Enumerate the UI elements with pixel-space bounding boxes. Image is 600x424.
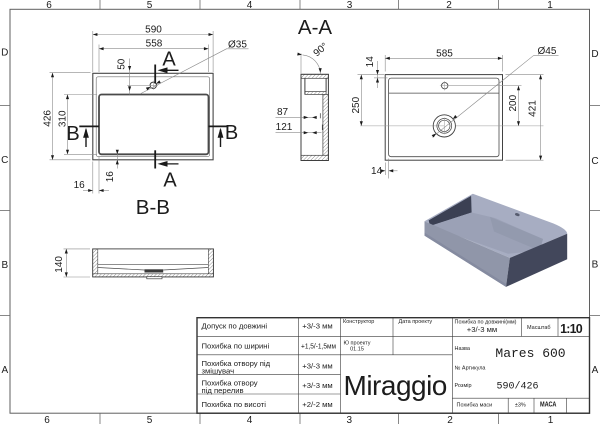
- svg-text:Дата проекту: Дата проекту: [399, 319, 433, 325]
- svg-text:№ Артикула: № Артикула: [455, 366, 487, 372]
- svg-text:5: 5: [147, 0, 153, 11]
- svg-text:16: 16: [105, 171, 116, 183]
- svg-text:3: 3: [347, 415, 353, 424]
- svg-text:+2/-2 мм: +2/-2 мм: [302, 400, 332, 409]
- svg-text:16: 16: [74, 180, 86, 191]
- svg-text:558: 558: [146, 39, 163, 50]
- svg-text:200: 200: [508, 94, 519, 111]
- svg-text:B-B: B-B: [136, 196, 170, 219]
- svg-text:Miraggio: Miraggio: [344, 370, 447, 401]
- svg-text:+3/-3 мм: +3/-3 мм: [302, 362, 332, 371]
- svg-text:A: A: [1, 365, 8, 376]
- svg-text:змішувач: змішувач: [202, 367, 235, 376]
- svg-text:під перелив: під перелив: [202, 386, 244, 395]
- svg-text:Похибка маси: Похибка маси: [457, 402, 493, 408]
- svg-text:590: 590: [145, 25, 162, 36]
- svg-text:Похибка по ширині: Похибка по ширині: [202, 342, 270, 351]
- svg-text:4: 4: [247, 0, 253, 11]
- svg-text:1:10: 1:10: [560, 322, 583, 336]
- svg-text:590/426: 590/426: [496, 380, 538, 392]
- svg-text:A: A: [592, 365, 599, 376]
- svg-text:A: A: [163, 169, 177, 191]
- svg-text:B: B: [1, 260, 8, 271]
- svg-text:D: D: [1, 48, 8, 59]
- svg-text:121: 121: [276, 122, 293, 133]
- svg-text:310: 310: [58, 110, 69, 127]
- svg-text:+1,5/-1,5мм: +1,5/-1,5мм: [301, 342, 336, 351]
- svg-text:МАСА: МАСА: [540, 399, 557, 408]
- svg-text:Допуск по довжині: Допуск по довжині: [202, 322, 268, 331]
- svg-text:2: 2: [447, 415, 453, 424]
- svg-text:±3%: ±3%: [515, 402, 526, 408]
- svg-text:6: 6: [44, 415, 50, 424]
- svg-text:01.15: 01.15: [350, 347, 364, 353]
- svg-text:14: 14: [371, 166, 383, 177]
- svg-text:4: 4: [247, 415, 253, 424]
- svg-text:Ø45: Ø45: [538, 46, 557, 57]
- svg-text:6: 6: [46, 0, 52, 11]
- svg-text:C: C: [1, 155, 8, 166]
- svg-text:50: 50: [116, 58, 127, 70]
- svg-text:C: C: [591, 156, 598, 167]
- svg-text:A: A: [162, 49, 176, 71]
- svg-text:Mares 600: Mares 600: [495, 346, 565, 361]
- svg-text:421: 421: [528, 100, 539, 117]
- svg-text:3: 3: [347, 0, 353, 11]
- svg-text:5: 5: [147, 415, 153, 424]
- svg-text:14: 14: [365, 56, 376, 68]
- svg-text:585: 585: [436, 48, 453, 59]
- svg-text:+3/-3 мм: +3/-3 мм: [302, 381, 332, 390]
- svg-text:1: 1: [548, 415, 554, 424]
- svg-text:Масштаб: Масштаб: [527, 325, 551, 331]
- svg-text:Назва: Назва: [455, 346, 471, 352]
- svg-text:D: D: [591, 49, 598, 60]
- svg-text:2: 2: [446, 0, 452, 11]
- svg-text:Конструктор: Конструктор: [343, 319, 374, 325]
- svg-text:Похибка по висоті: Похибка по висоті: [202, 400, 267, 409]
- svg-text:Розмір: Розмір: [455, 383, 472, 389]
- svg-text:Ø35: Ø35: [228, 39, 247, 50]
- svg-text:250: 250: [351, 96, 362, 113]
- svg-text:1: 1: [547, 0, 553, 11]
- svg-text:140: 140: [54, 256, 65, 273]
- svg-text:A-A: A-A: [298, 16, 333, 39]
- svg-text:+3/-3 мм: +3/-3 мм: [302, 322, 332, 331]
- svg-text:B: B: [225, 122, 238, 144]
- svg-text:87: 87: [277, 107, 289, 118]
- svg-text:B: B: [592, 260, 599, 271]
- svg-text:+3/-3 мм: +3/-3 мм: [467, 325, 497, 334]
- svg-text:426: 426: [43, 110, 54, 127]
